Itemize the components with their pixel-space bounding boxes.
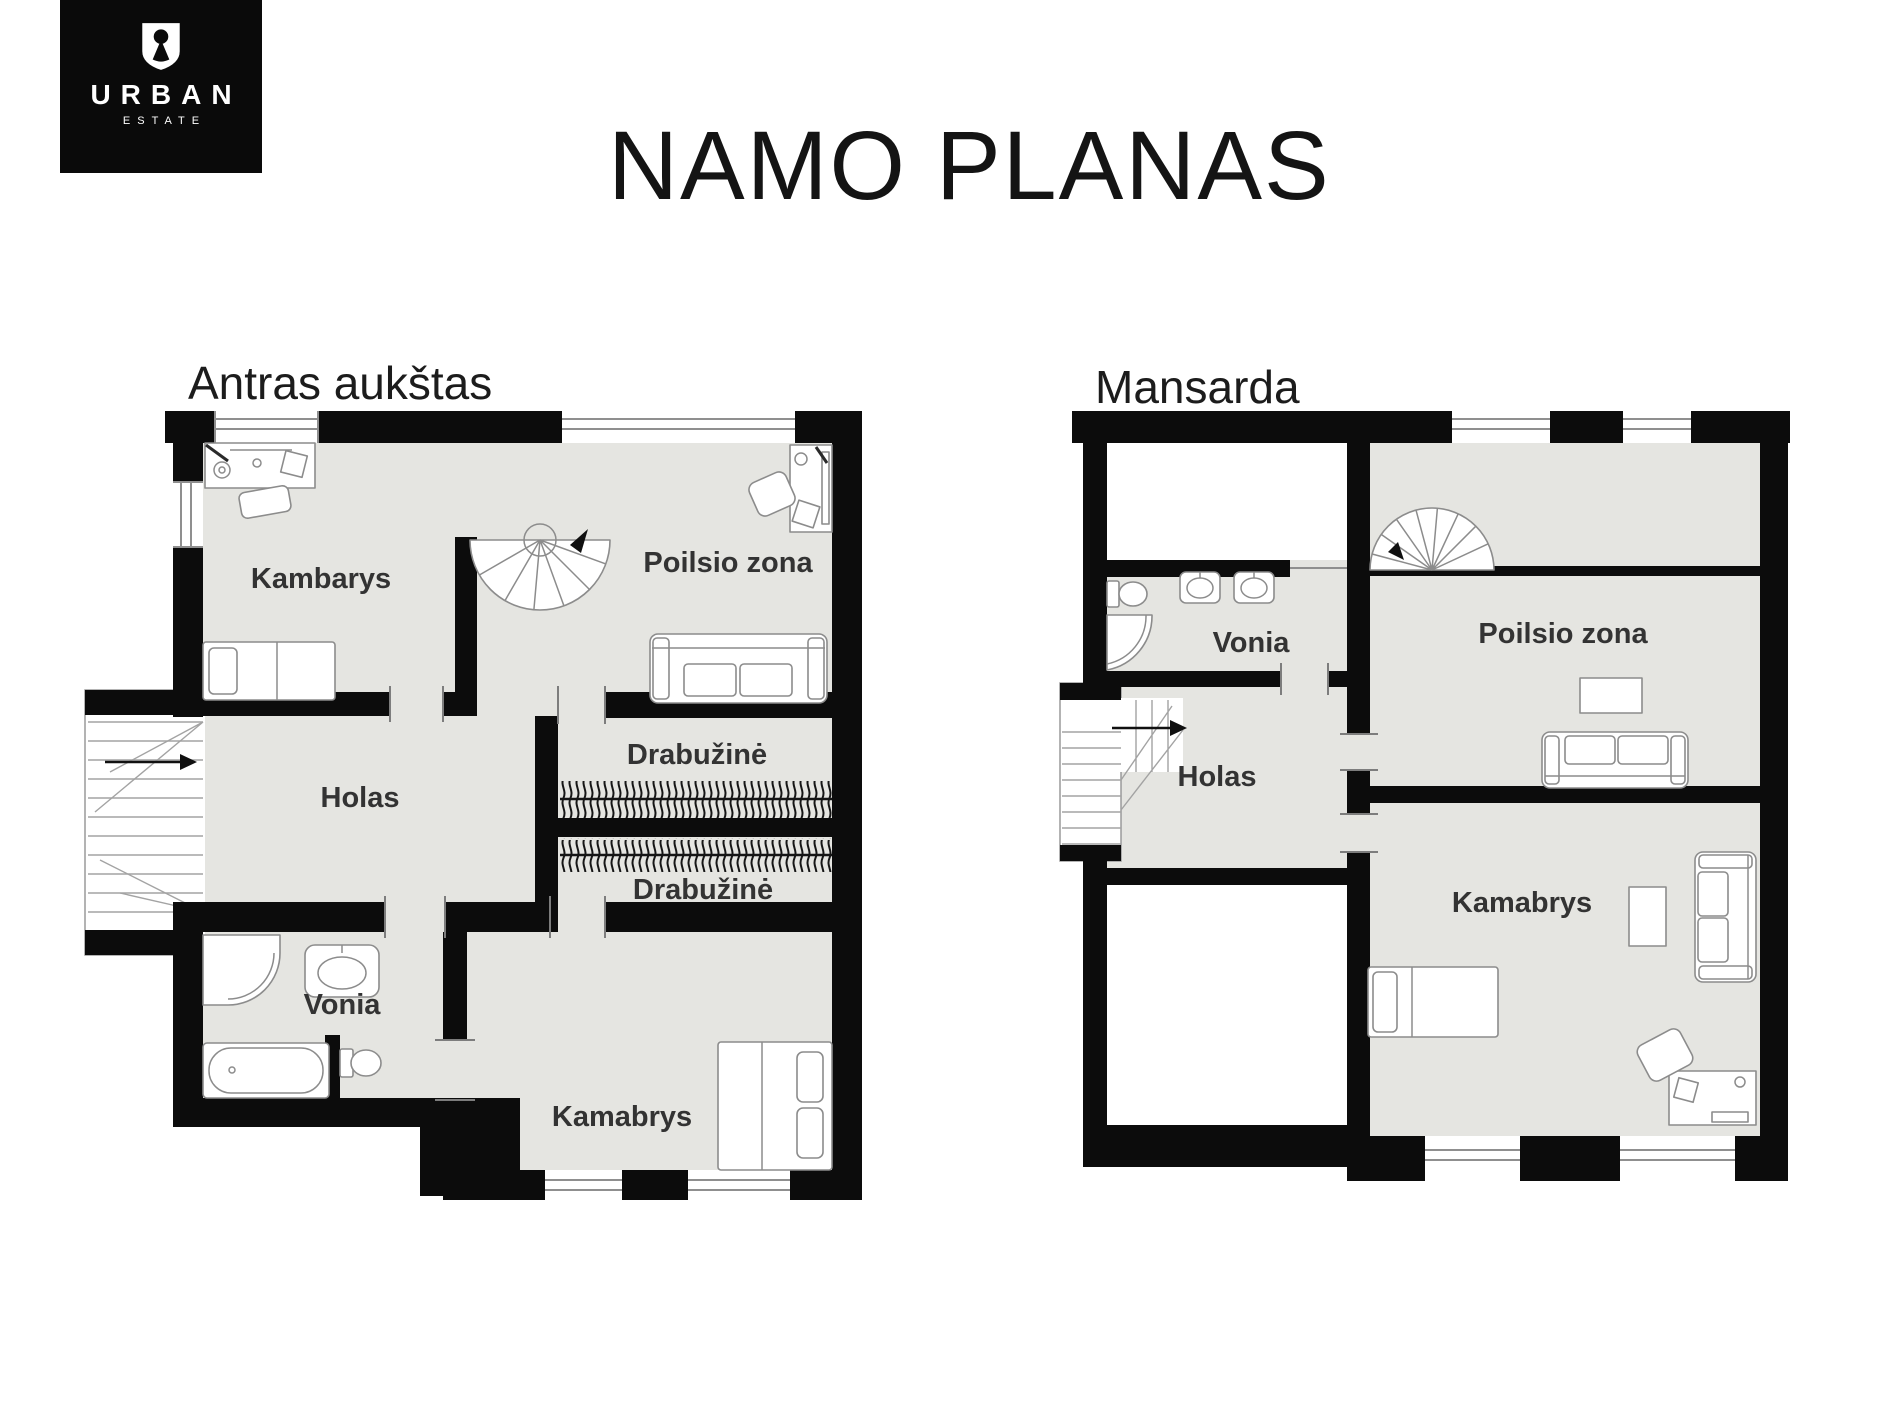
room-label-holas: Holas bbox=[321, 782, 400, 814]
logo-subtitle: ESTATE bbox=[116, 115, 206, 127]
room-label-kambarys: Kambarys bbox=[251, 563, 391, 595]
room-label-drabuzine-2: Drabužinė bbox=[633, 874, 773, 906]
logo-brand: URBAN bbox=[80, 79, 241, 111]
floor-plan-antras-aukstas: Kambarys Poilsio zona Holas Drabužinė Dr… bbox=[55, 400, 875, 1230]
logo: URBAN ESTATE bbox=[60, 0, 262, 173]
tv-icon bbox=[1580, 678, 1642, 713]
floor-plan-page: { "title": "NAMO PLANAS", "logo": { "bra… bbox=[0, 0, 1900, 1417]
sink-icon bbox=[1234, 572, 1274, 603]
sofa-icon bbox=[1695, 852, 1756, 982]
room-label-kamabrys: Kamabrys bbox=[552, 1101, 692, 1133]
room-label-poilsio-zona: Poilsio zona bbox=[1478, 618, 1648, 650]
nightstand-icon bbox=[1629, 887, 1666, 946]
room-label-kamabrys: Kamabrys bbox=[1452, 887, 1592, 919]
toilet-icon bbox=[1107, 581, 1147, 607]
room-label-vonia: Vonia bbox=[304, 989, 382, 1021]
room-label-poilsio-zona: Poilsio zona bbox=[643, 547, 813, 579]
sofa-icon bbox=[650, 634, 827, 703]
sofa-icon bbox=[1542, 732, 1688, 788]
room-label-drabuzine-1: Drabužinė bbox=[627, 739, 767, 771]
room-label-holas: Holas bbox=[1178, 761, 1257, 793]
bed-icon bbox=[203, 642, 335, 700]
keyhole-shield-icon bbox=[138, 20, 184, 72]
double-bed-icon bbox=[718, 1042, 832, 1170]
room-label-vonia: Vonia bbox=[1213, 627, 1291, 659]
sink-icon bbox=[1180, 572, 1220, 603]
floor-plan-mansarda: Vonia Poilsio zona Holas Kamabrys bbox=[1000, 400, 1800, 1190]
page-title: NAMO PLANAS bbox=[608, 110, 1331, 222]
bathtub-icon bbox=[203, 1043, 329, 1098]
bed-icon bbox=[1368, 967, 1498, 1037]
toilet-icon bbox=[340, 1049, 381, 1077]
